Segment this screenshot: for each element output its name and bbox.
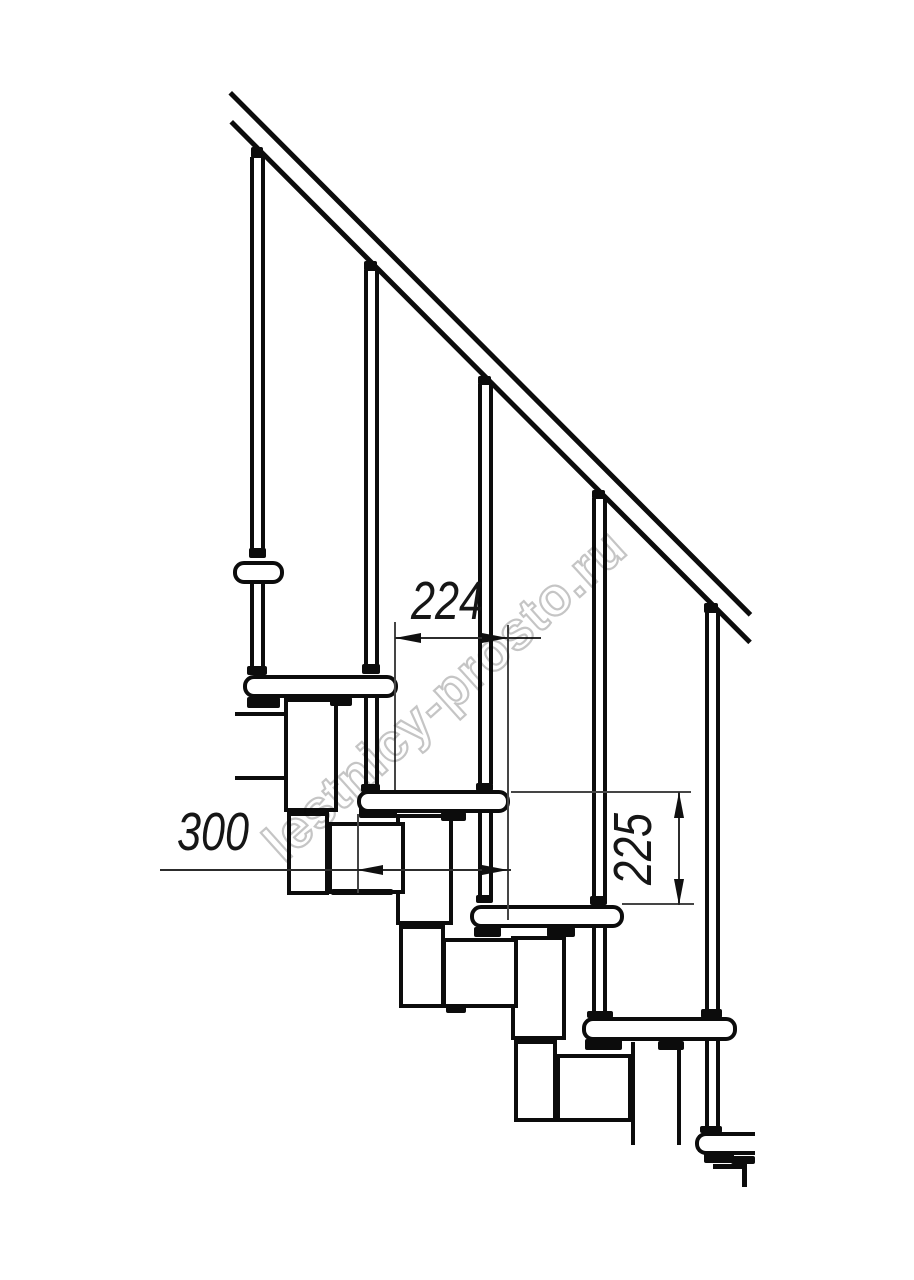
bottom-module-v-line [742,1164,747,1187]
module-2-bottom-bar [331,889,393,895]
support-column-4 [631,1042,681,1145]
baluster-2 [364,270,379,666]
baluster-3-top-cap [478,376,491,385]
tread-3-column-clamp [547,927,575,937]
baluster-4-top-cap [592,490,605,499]
tread-3 [470,905,624,928]
post-3-cap [476,895,493,903]
baluster-1 [250,157,265,549]
baluster-3-bottom-cap [476,783,493,791]
wall-stub-line-top [235,712,287,716]
dim-300-arrow-right-icon [482,865,508,875]
dim-300-label: 300 [177,805,249,859]
tread-1-column-clamp [330,697,352,706]
tread-3-front-clamp [474,927,501,937]
baluster-1-top-cap [251,147,263,158]
dim-225-arrow-down-icon [674,879,684,905]
dim-300-arrow-left-icon [357,865,383,875]
tread-4-column-clamp [658,1041,684,1050]
post-4-cap [587,1011,613,1018]
ext-line-225-top [511,791,691,793]
dim-224-arrow-left-icon [395,633,421,643]
bottom-module-h-line [713,1164,743,1169]
support-column-2-lower [399,925,445,1008]
support-module-box-4 [556,1054,632,1122]
tread-5-side-clamp [731,1156,755,1164]
baluster-5-top-cap [704,603,718,613]
ext-line-300-left [357,814,359,893]
wall-bracket [233,561,284,584]
post-5-cap [700,1126,722,1133]
wall-stub-line-bottom [235,776,287,780]
post-5 [705,1041,720,1129]
dim-225-arrow-up-icon [674,792,684,818]
support-module-box-2 [328,822,405,894]
baluster-5 [705,612,720,1012]
tread-1 [243,675,398,698]
dim-224-label: 224 [411,574,483,628]
post-1-cap [247,666,267,675]
post-3 [478,813,493,897]
dim-225-label: 225 [606,813,660,885]
tread-2-column-clamp [441,812,466,821]
post-4 [592,928,607,1014]
support-module-box-3 [442,938,518,1008]
tread-4 [582,1017,737,1041]
support-column-3-lower [514,1040,557,1122]
support-column-3-upper [511,936,566,1040]
tread-5-clipped [695,1132,755,1155]
baluster-1-bottom-cap [249,548,266,558]
baluster-5-bottom-cap [701,1009,722,1018]
staircase-drawing: 224 300 225 lestnicy-prosto.ru [0,0,914,1280]
tread-1-front-clamp [247,697,280,708]
module-3-bottom-notch [446,1005,466,1013]
dim-line-300 [160,869,511,871]
baluster-2-bottom-cap [362,664,380,674]
baluster-2-top-cap [364,261,377,271]
baluster-4-bottom-cap [590,896,607,905]
post-1 [250,584,265,668]
